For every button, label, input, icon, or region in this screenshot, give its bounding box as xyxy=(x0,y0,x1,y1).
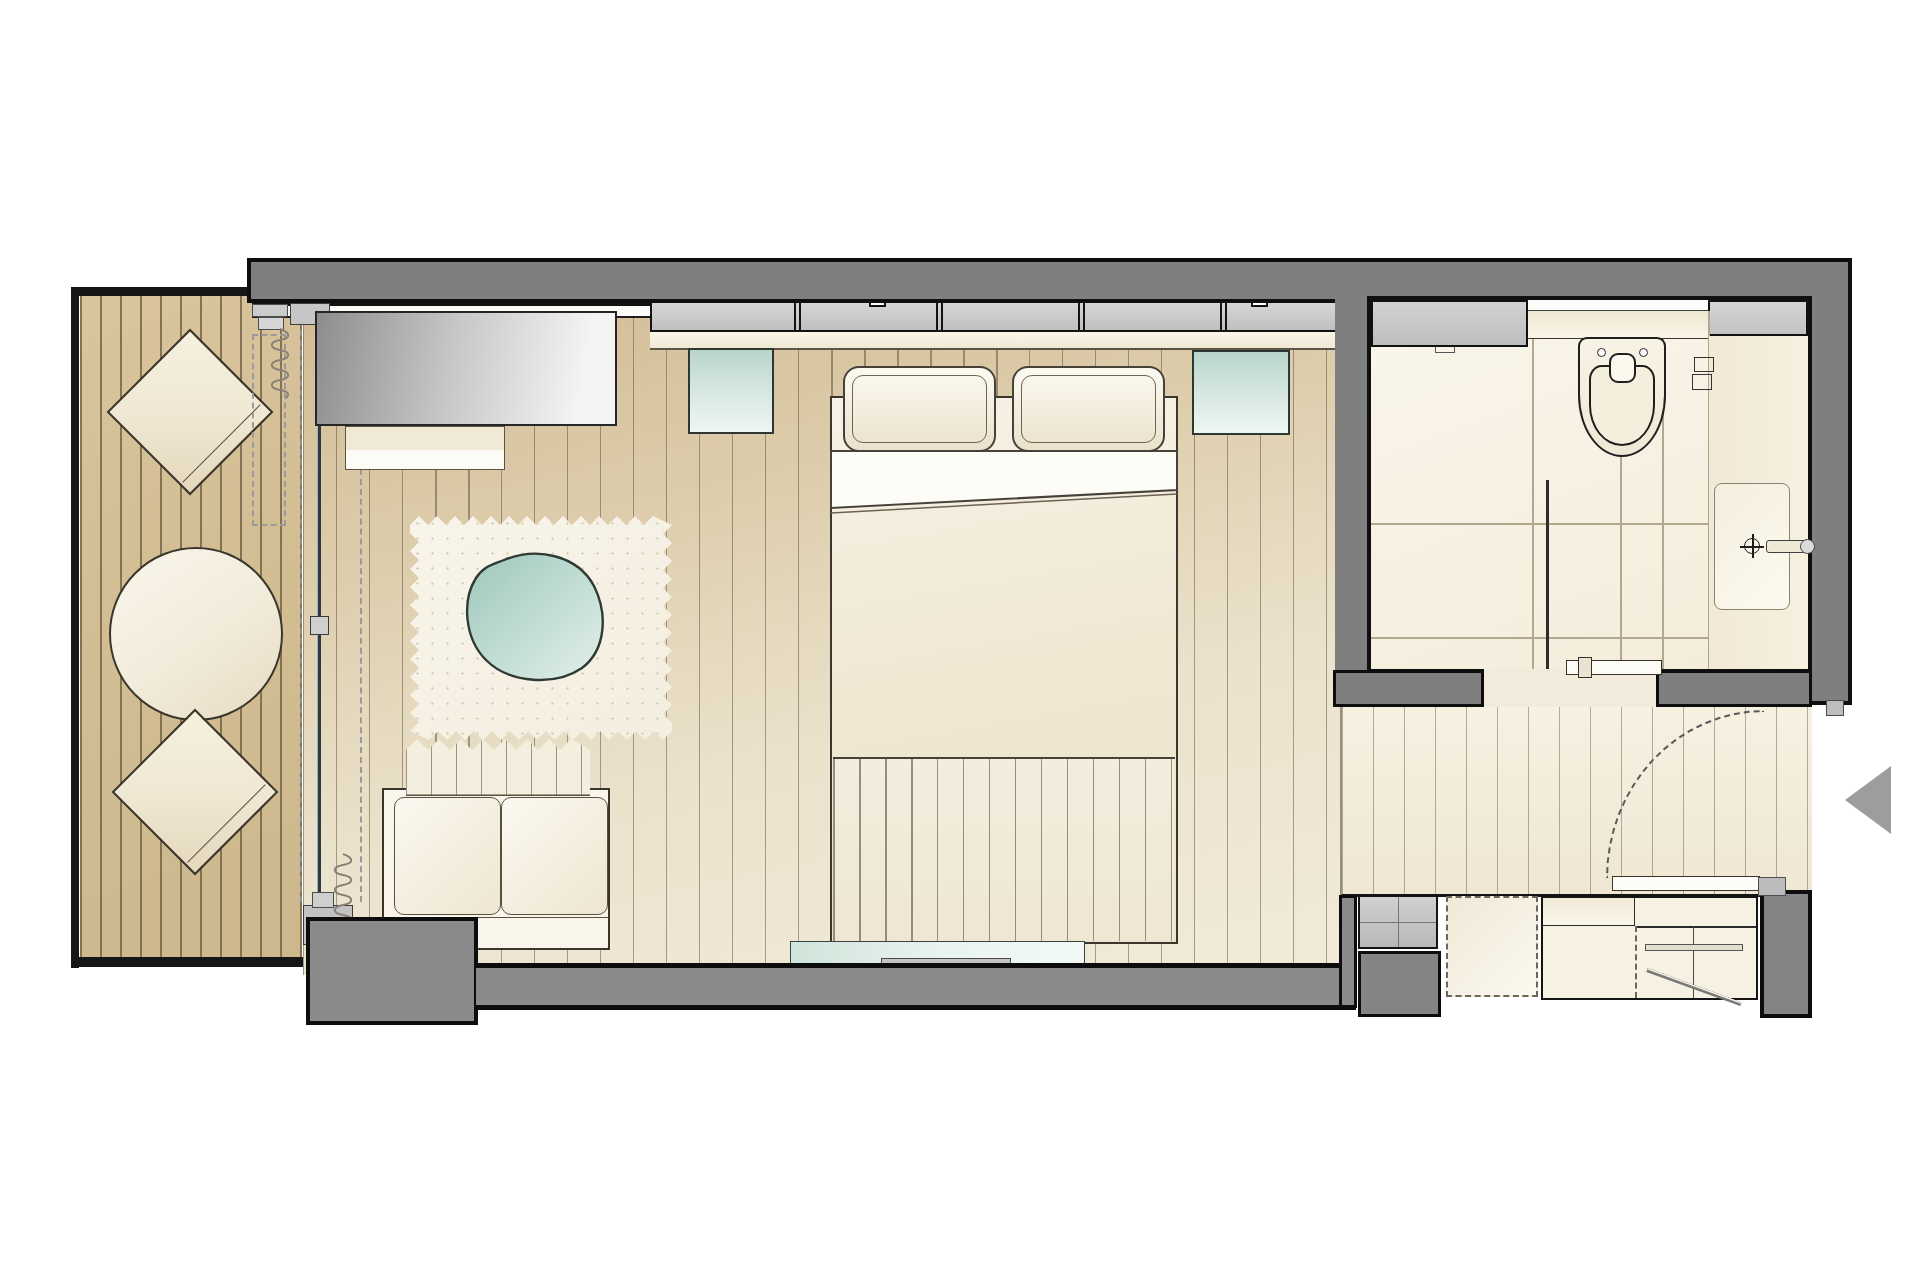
bed-sheet-fold xyxy=(830,450,1178,520)
closet-shelf xyxy=(1543,898,1635,926)
entry-door-leaf xyxy=(1612,876,1760,891)
wall-pier-bottom-left xyxy=(306,917,478,1025)
entry-door-hinge-block xyxy=(1758,877,1786,896)
closet-hanging-rod xyxy=(1645,944,1743,951)
storage-niche xyxy=(1708,300,1808,336)
terrace-railing-left xyxy=(71,287,79,968)
entrance-arrow-icon xyxy=(1845,766,1891,834)
bed-foot-throw xyxy=(833,757,1175,941)
rug-blob-graphic xyxy=(410,516,672,740)
shower-head-mark xyxy=(1435,347,1455,353)
pillow-seam xyxy=(852,375,987,443)
nightstand-left xyxy=(688,348,774,434)
exterior-wall-bottom xyxy=(476,963,1356,1010)
panel-divider xyxy=(1220,302,1227,330)
shower-glass-partition xyxy=(1546,480,1549,669)
faucet-icon xyxy=(1744,538,1760,554)
toilet-cistern-band xyxy=(1528,311,1708,339)
bathroom-wall-right xyxy=(1808,296,1852,705)
tile-grout-line xyxy=(1371,523,1708,525)
wall-stub xyxy=(1339,895,1357,1008)
closet-dashed-centerline xyxy=(1635,926,1637,998)
faucet-wall-mount xyxy=(1800,539,1815,554)
toilet-hinge-dot xyxy=(1639,348,1648,357)
tv-sideboard xyxy=(315,311,617,426)
pillow-left xyxy=(843,366,996,452)
luggage-rack-dashed xyxy=(1446,896,1538,997)
shower-mirror-panel xyxy=(1371,300,1528,347)
bench-front xyxy=(345,450,505,470)
sliding-door-jamb xyxy=(252,304,288,317)
nightstand-right xyxy=(1192,350,1290,435)
terrace-round-table xyxy=(109,547,283,721)
flush-plate xyxy=(1694,357,1714,372)
pillow-right xyxy=(1012,366,1165,452)
entry-closet xyxy=(1541,896,1758,1000)
minibar-divider xyxy=(1360,922,1436,923)
curtain-squiggle-top xyxy=(262,326,298,404)
minibar-unit xyxy=(1358,895,1438,949)
sofa-cushion-right xyxy=(501,797,608,915)
bench-seat xyxy=(345,426,505,451)
door-track-dashed-line xyxy=(300,330,302,902)
tile-grout-line xyxy=(1371,637,1708,639)
panel-divider xyxy=(936,302,943,330)
bathroom-wall-left xyxy=(1335,296,1369,677)
panel-divider xyxy=(794,302,801,330)
entry-frame-stub xyxy=(1826,700,1844,716)
bathroom-door-knob xyxy=(1578,657,1592,678)
sliding-door-meeting-stile xyxy=(310,616,329,635)
flush-plate xyxy=(1692,374,1712,390)
tile-grout-line xyxy=(1532,339,1534,669)
terrace-railing-top xyxy=(71,287,252,296)
floor-plan xyxy=(0,0,1920,1280)
toilet-hinge-dot xyxy=(1597,348,1606,357)
toilet-bowl-opening xyxy=(1609,353,1636,383)
bathroom-wall-bottom-right xyxy=(1656,670,1812,707)
terrace-railing-bottom xyxy=(71,957,311,967)
closet-divider-line xyxy=(1635,926,1756,928)
panel-divider xyxy=(1078,302,1085,330)
area-rug xyxy=(410,516,672,740)
wall-pier-minibar xyxy=(1358,951,1441,1017)
pillow-seam xyxy=(1021,375,1156,443)
bathroom-wall-bottom-left xyxy=(1333,670,1484,707)
bathroom xyxy=(1367,296,1812,673)
wall-hung-toilet xyxy=(1578,337,1666,457)
sofa-cushion-left xyxy=(394,797,501,915)
wall-pier-bottom-right xyxy=(1760,890,1812,1018)
toilet-wall-shelf xyxy=(1528,300,1708,311)
